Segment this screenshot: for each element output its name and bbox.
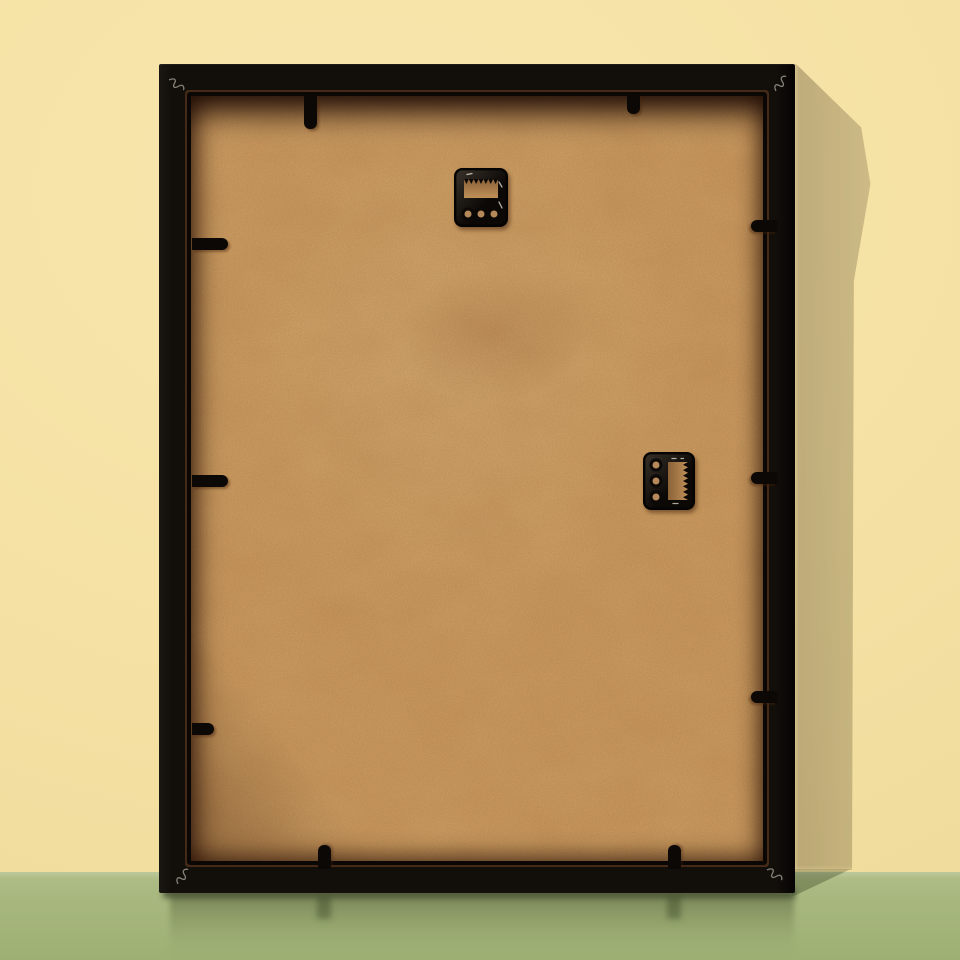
- floor-reflection: [170, 894, 794, 958]
- tab-reflection: [667, 897, 681, 919]
- v-nail-mark: [760, 858, 791, 889]
- retainer-tab: [751, 472, 777, 484]
- tab-reflection: [317, 897, 331, 919]
- retainer-tab: [751, 691, 777, 703]
- retainer-tab: [192, 475, 228, 487]
- retainer-tab: [192, 723, 214, 735]
- retainer-tab: [627, 94, 640, 114]
- retainer-tab: [668, 845, 681, 869]
- sawtooth-hanger-side: [643, 452, 695, 510]
- sawtooth-hanger-top: [454, 168, 508, 227]
- picture-frame-back: [159, 64, 795, 893]
- sawtooth-hanger-top-icon: [454, 168, 508, 227]
- v-nail-mark: [162, 68, 193, 99]
- retainer-tab: [318, 845, 331, 869]
- retainer-tab: [751, 220, 777, 232]
- v-nail-mark: [166, 859, 197, 890]
- v-nail-mark: [764, 66, 795, 97]
- scene: [0, 0, 960, 960]
- retainer-tab: [192, 238, 228, 250]
- retainer-tab: [304, 94, 317, 129]
- sawtooth-hanger-side-icon: [643, 452, 695, 510]
